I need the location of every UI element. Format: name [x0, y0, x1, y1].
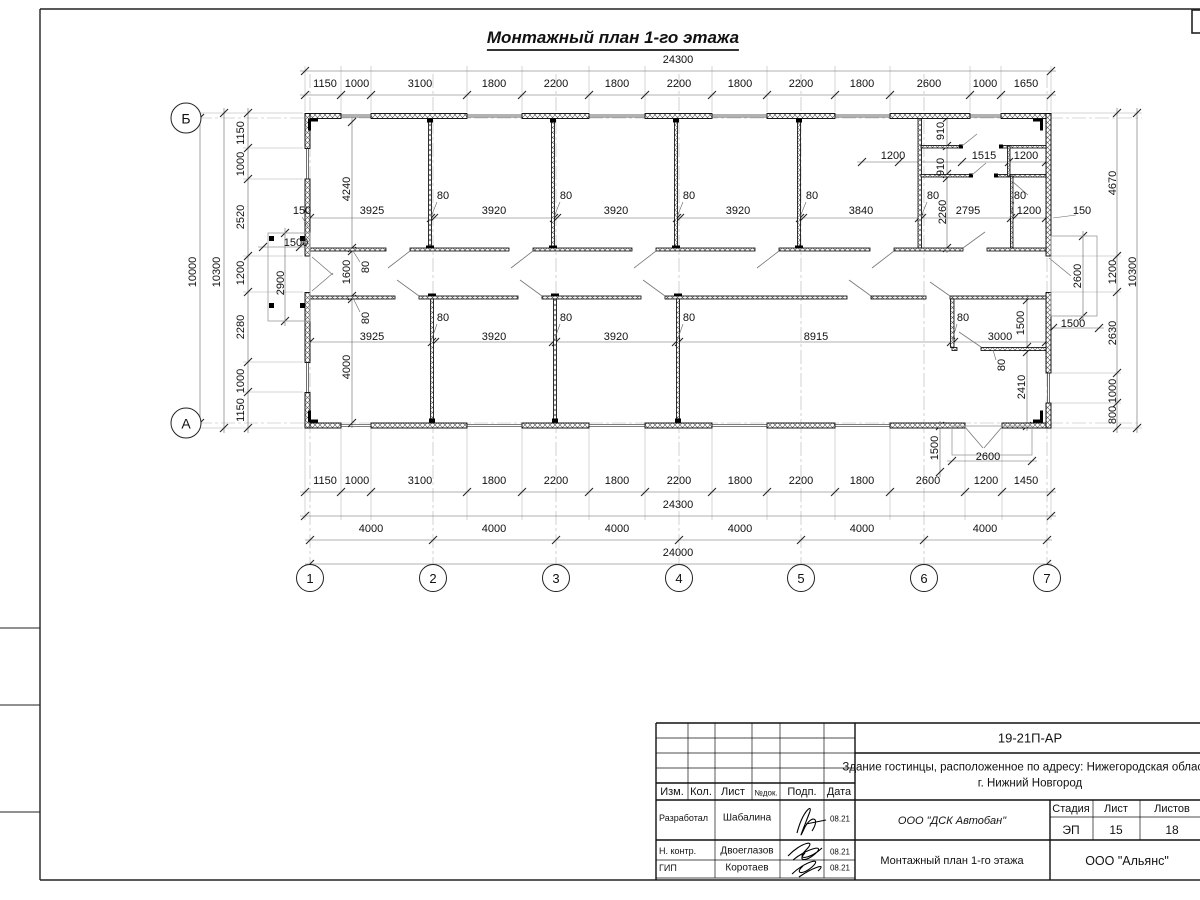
col-kol: Кол. — [690, 786, 712, 798]
col-data: Дата — [827, 786, 851, 798]
row1-role: Разработал — [659, 813, 708, 823]
row1-date: 08.21 — [830, 815, 850, 824]
company-name: ООО "Альянс" — [1085, 854, 1169, 868]
page-frame — [40, 9, 1200, 880]
drawing-title: Монтажный план 1-го этажа — [487, 28, 739, 51]
dimension-lines — [195, 66, 1142, 568]
col-list: Лист — [721, 786, 745, 798]
drawing-sheet: 2430011501000310018002200180022001800220… — [0, 0, 1200, 900]
frame-edge-ticks — [0, 628, 40, 812]
row3-name: Коротаев — [725, 863, 768, 874]
col-izm: Изм. — [660, 786, 684, 798]
signatures — [788, 808, 826, 877]
org-name: ООО "ДСК Автобан" — [898, 815, 1006, 827]
row2-role: Н. контр. — [659, 846, 696, 856]
row3-date: 08.21 — [830, 864, 850, 873]
row1-name: Шабалина — [723, 813, 771, 824]
sheet-value: 15 — [1109, 823, 1122, 837]
col-doc: №док. — [754, 789, 777, 798]
row2-date: 08.21 — [830, 848, 850, 857]
doc-code: 19-21П-АР — [998, 731, 1062, 746]
door-leaves — [312, 134, 1071, 448]
stage-label: Стадия — [1052, 803, 1090, 815]
stage-value: ЭП — [1062, 823, 1079, 837]
object-name: Здание гостинцы, расположенное по адресу… — [840, 760, 1200, 791]
sheets-value: 18 — [1165, 823, 1178, 837]
plan-name: Монтажный план 1-го этажа — [880, 855, 1023, 867]
sheet-label: Лист — [1104, 803, 1128, 815]
row3-role: ГИП — [659, 863, 677, 873]
interior-walls — [310, 119, 1046, 424]
sheets-label: Листов — [1154, 803, 1190, 815]
porches — [268, 233, 1097, 455]
leader-lines — [302, 202, 1076, 360]
row2-name: Двоеглазов — [720, 846, 773, 857]
col-podp: Подп. — [787, 786, 816, 798]
